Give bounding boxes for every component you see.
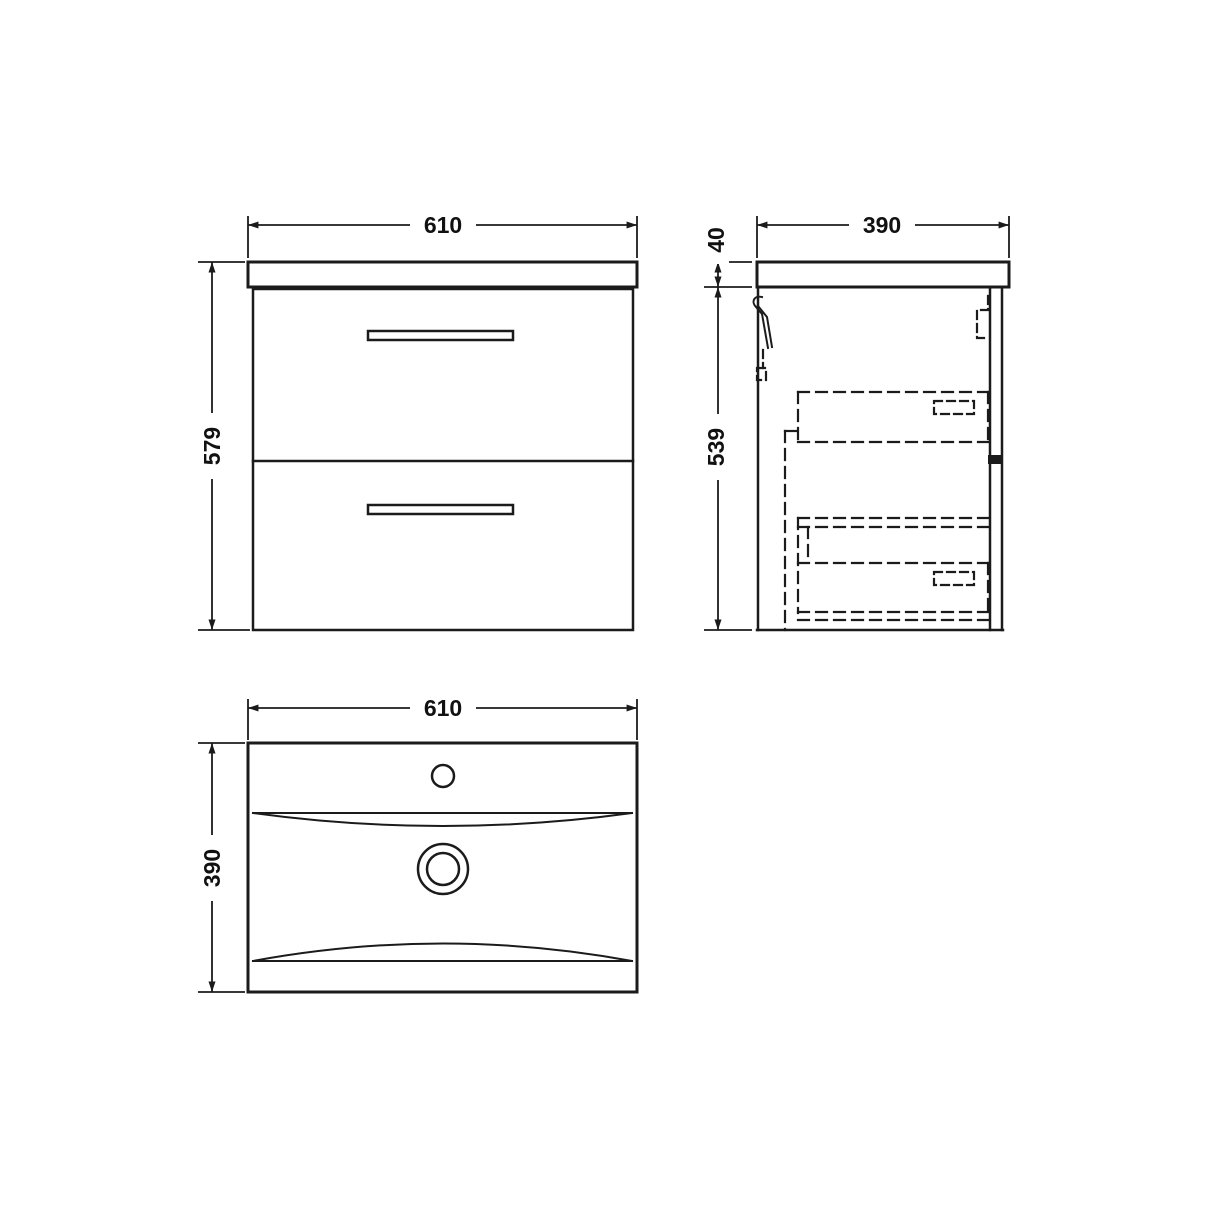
- dim-side-worktop: 40: [702, 216, 752, 287]
- dim-side-height: 539: [702, 287, 752, 630]
- dim-side-depth: 390: [757, 211, 1009, 258]
- dim-label-front-width: 610: [424, 212, 462, 238]
- back-bracket-hidden: [977, 296, 988, 338]
- worktop-front: [248, 262, 637, 287]
- worktop-side: [757, 262, 1009, 287]
- dim-label-front-height: 579: [199, 427, 225, 465]
- dim-label-plan-depth: 390: [199, 849, 225, 887]
- dim-front-width: 610: [248, 211, 637, 258]
- drawer-runner-bracket: [934, 401, 974, 414]
- dim-label-cabinet-height: 539: [703, 428, 729, 466]
- drawer-runner-bracket: [934, 572, 974, 585]
- technical-drawing-canvas: 610 579 390: [0, 0, 1214, 1214]
- hidden-basin-recess: [785, 431, 988, 630]
- drawer-handle-top: [368, 331, 513, 340]
- dim-plan-depth: 390: [198, 743, 245, 992]
- wall-hanging-bracket: [988, 455, 1003, 464]
- front-elevation-view: 610 579: [198, 211, 637, 630]
- vanity-unit-drawing: 610 579 390: [0, 0, 1214, 1214]
- basin-plan-view: 610 390: [198, 694, 637, 992]
- side-section-view: 390 40 539: [702, 211, 1009, 630]
- dim-label-worktop-thickness: 40: [703, 227, 729, 253]
- dim-plan-width: 610: [248, 694, 637, 740]
- basin-outline: [248, 743, 637, 992]
- hidden-drawer-lower: [798, 563, 990, 620]
- fixing-hook: [754, 297, 772, 380]
- dim-label-side-depth: 390: [863, 212, 901, 238]
- dim-front-height: 579: [198, 262, 250, 630]
- dim-label-plan-width: 610: [424, 695, 462, 721]
- hidden-drawer-upper: [798, 392, 988, 442]
- drawer-handle-bottom: [368, 505, 513, 514]
- hook-outline: [754, 297, 768, 348]
